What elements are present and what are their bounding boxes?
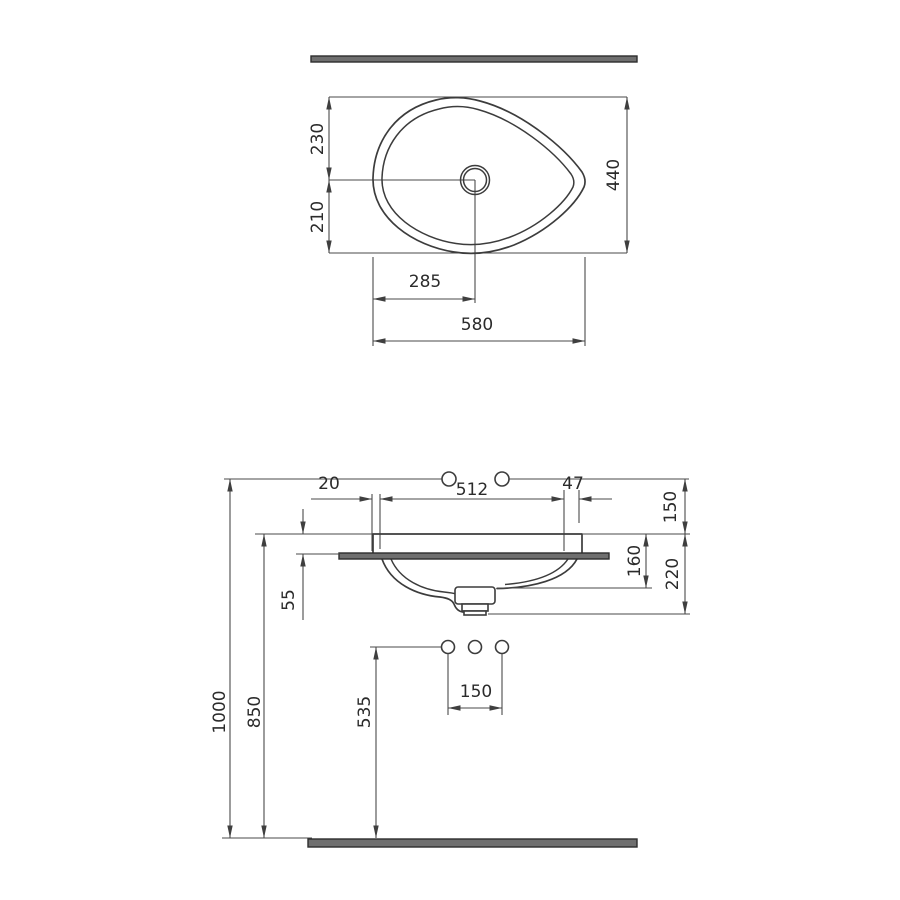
bowl-inner-right [505, 559, 568, 585]
waste-flange [455, 587, 495, 604]
dim-label-850: 850 [245, 696, 265, 728]
technical-drawing-page: 230 210 440 285 580 512 20 47 [0, 0, 900, 900]
basin-outer-outline [373, 98, 585, 254]
tap-hole-right [495, 472, 509, 486]
waste-lip [464, 611, 486, 615]
dim-label-47: 47 [562, 474, 584, 494]
dim-label-150-right: 150 [661, 491, 681, 523]
bowl-inner-left [391, 559, 456, 594]
rim-profile [373, 534, 582, 553]
sink-dimension-drawing: 230 210 440 285 580 512 20 47 [0, 0, 900, 900]
dim-label-160: 160 [625, 545, 645, 577]
dim-label-512: 512 [456, 480, 488, 500]
dim-label-285: 285 [409, 272, 441, 292]
outlet-hole-2 [469, 641, 482, 654]
dim-label-150-holes: 150 [460, 682, 492, 702]
tap-hole-left [442, 472, 456, 486]
dim-label-535: 535 [355, 696, 375, 728]
dim-label-20: 20 [318, 474, 340, 494]
outlet-hole-1 [442, 641, 455, 654]
dim-label-1000: 1000 [210, 690, 230, 733]
dim-label-55: 55 [279, 589, 299, 611]
outlet-hole-3 [496, 641, 509, 654]
waste-tailpiece [462, 604, 488, 611]
countertop-bar [339, 553, 609, 559]
dim-label-220: 220 [663, 558, 683, 590]
dim-label-440: 440 [604, 159, 624, 191]
front-view: 512 20 47 150 160 220 [210, 472, 690, 847]
bowl-outer-left [382, 559, 463, 612]
top-view: 230 210 440 285 580 [308, 56, 637, 346]
floor-bar [308, 839, 637, 847]
dim-label-210: 210 [308, 201, 328, 233]
dim-label-230: 230 [308, 123, 328, 155]
basin-inner-outline [382, 107, 574, 245]
dim-label-580: 580 [461, 315, 493, 335]
wall-section-bar [311, 56, 637, 62]
